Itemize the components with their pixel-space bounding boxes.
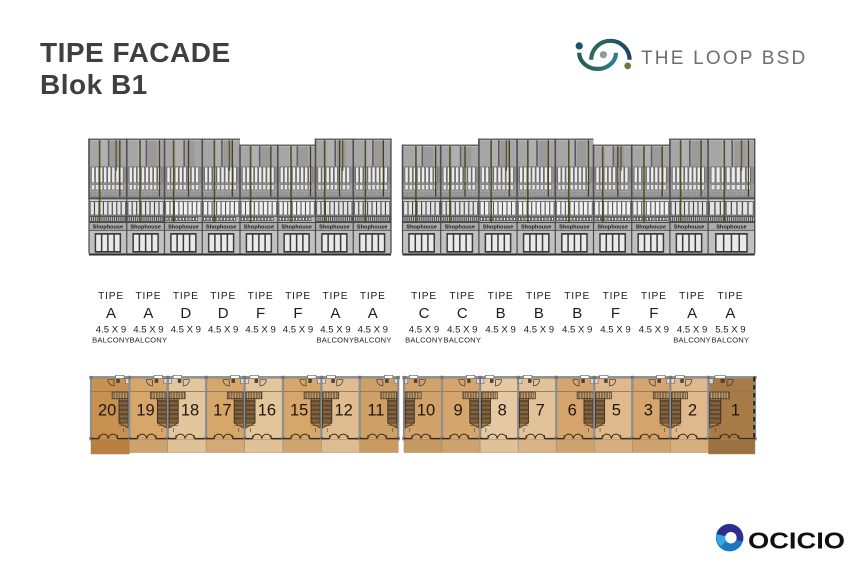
svg-text:BALCONY: BALCONY bbox=[673, 336, 711, 345]
svg-text:Shophouse: Shophouse bbox=[281, 224, 311, 230]
svg-text:4.5 X 9: 4.5 X 9 bbox=[447, 325, 477, 336]
svg-text:Shophouse: Shophouse bbox=[559, 224, 589, 230]
svg-text:BALCONY: BALCONY bbox=[130, 336, 168, 345]
svg-text:Shophouse: Shophouse bbox=[319, 224, 349, 230]
svg-text:5: 5 bbox=[612, 402, 621, 420]
svg-text:4.5 X 9: 4.5 X 9 bbox=[600, 325, 630, 336]
svg-text:BALCONY: BALCONY bbox=[92, 336, 130, 345]
svg-text:19: 19 bbox=[136, 402, 154, 420]
svg-text:D: D bbox=[180, 305, 191, 322]
svg-text:TIPE: TIPE bbox=[360, 291, 386, 302]
svg-text:4.5 X 9: 4.5 X 9 bbox=[485, 325, 515, 336]
svg-text:7: 7 bbox=[536, 402, 545, 420]
svg-text:BALCONY: BALCONY bbox=[443, 336, 481, 345]
svg-text:BALCONY: BALCONY bbox=[354, 336, 392, 345]
svg-text:4.5 X 9: 4.5 X 9 bbox=[409, 325, 439, 336]
svg-text:TIPE: TIPE bbox=[322, 291, 348, 302]
svg-text:4.5 X 9: 4.5 X 9 bbox=[96, 325, 126, 336]
svg-text:TIPE: TIPE bbox=[488, 291, 514, 302]
svg-text:TIPE FACADE: TIPE FACADE bbox=[40, 37, 231, 68]
svg-text:B: B bbox=[534, 305, 544, 322]
svg-text:11: 11 bbox=[367, 402, 384, 420]
svg-text:TIPE: TIPE bbox=[603, 291, 629, 302]
svg-text:8: 8 bbox=[498, 402, 507, 420]
svg-text:4.5 X 9: 4.5 X 9 bbox=[171, 325, 201, 336]
svg-text:1: 1 bbox=[731, 402, 740, 420]
svg-text:B: B bbox=[496, 305, 506, 322]
svg-text:17: 17 bbox=[213, 402, 231, 420]
svg-text:Shophouse: Shophouse bbox=[93, 224, 123, 230]
svg-text:Shophouse: Shophouse bbox=[445, 224, 475, 230]
svg-text:Shophouse: Shophouse bbox=[521, 224, 551, 230]
svg-text:TIPE: TIPE bbox=[98, 291, 124, 302]
svg-text:4.5 X 9: 4.5 X 9 bbox=[208, 325, 238, 336]
svg-text:4.5 X 9: 4.5 X 9 bbox=[245, 325, 275, 336]
svg-text:BALCONY: BALCONY bbox=[405, 336, 443, 345]
svg-text:2: 2 bbox=[688, 402, 697, 420]
svg-text:Shophouse: Shophouse bbox=[636, 224, 666, 230]
svg-text:A: A bbox=[106, 305, 116, 322]
svg-text:Blok B1: Blok B1 bbox=[40, 69, 148, 100]
svg-text:12: 12 bbox=[334, 402, 352, 420]
svg-text:F: F bbox=[611, 305, 620, 322]
svg-text:4.5 X 9: 4.5 X 9 bbox=[320, 325, 350, 336]
svg-text:Shophouse: Shophouse bbox=[597, 224, 627, 230]
svg-text:15: 15 bbox=[290, 402, 308, 420]
svg-text:18: 18 bbox=[181, 402, 199, 420]
svg-text:A: A bbox=[368, 305, 378, 322]
svg-text:4.5 X 9: 4.5 X 9 bbox=[133, 325, 163, 336]
svg-text:TIPE: TIPE bbox=[526, 291, 552, 302]
svg-text:TIPE: TIPE bbox=[135, 291, 161, 302]
svg-text:16: 16 bbox=[258, 402, 276, 420]
svg-text:THE LOOP BSD: THE LOOP BSD bbox=[641, 48, 807, 69]
svg-text:TIPE: TIPE bbox=[173, 291, 199, 302]
svg-text:TIPE: TIPE bbox=[210, 291, 236, 302]
svg-text:TIPE: TIPE bbox=[449, 291, 475, 302]
svg-text:6: 6 bbox=[568, 402, 577, 420]
svg-text:TIPE: TIPE bbox=[564, 291, 590, 302]
svg-text:TIPE: TIPE bbox=[717, 291, 743, 302]
svg-text:3: 3 bbox=[644, 402, 653, 420]
svg-text:B: B bbox=[572, 305, 582, 322]
svg-text:Shophouse: Shophouse bbox=[244, 224, 274, 230]
svg-text:9: 9 bbox=[453, 402, 462, 420]
svg-text:Shophouse: Shophouse bbox=[168, 224, 198, 230]
svg-text:A: A bbox=[687, 305, 697, 322]
svg-text:TIPE: TIPE bbox=[285, 291, 311, 302]
svg-text:TIPE: TIPE bbox=[641, 291, 667, 302]
svg-text:BALCONY: BALCONY bbox=[317, 336, 355, 345]
svg-text:4.5 X 9: 4.5 X 9 bbox=[358, 325, 388, 336]
svg-text:4.5 X 9: 4.5 X 9 bbox=[524, 325, 554, 336]
svg-text:TIPE: TIPE bbox=[679, 291, 705, 302]
svg-text:TIPE: TIPE bbox=[411, 291, 437, 302]
svg-text:TIPE: TIPE bbox=[248, 291, 274, 302]
svg-text:A: A bbox=[725, 305, 735, 322]
svg-text:Shophouse: Shophouse bbox=[406, 224, 436, 230]
svg-text:Shophouse: Shophouse bbox=[206, 224, 236, 230]
svg-text:C: C bbox=[419, 305, 430, 322]
svg-text:4.5 X 9: 4.5 X 9 bbox=[639, 325, 669, 336]
svg-text:5.5 X 9: 5.5 X 9 bbox=[715, 325, 745, 336]
svg-text:F: F bbox=[649, 305, 658, 322]
svg-text:Shophouse: Shophouse bbox=[716, 224, 746, 230]
svg-text:OCICIO: OCICIO bbox=[748, 528, 845, 554]
svg-text:F: F bbox=[256, 305, 265, 322]
svg-text:Shophouse: Shophouse bbox=[357, 224, 387, 230]
svg-text:20: 20 bbox=[98, 402, 116, 420]
svg-text:C: C bbox=[457, 305, 468, 322]
svg-text:Shophouse: Shophouse bbox=[674, 224, 704, 230]
svg-text:A: A bbox=[330, 305, 340, 322]
svg-text:BALCONY: BALCONY bbox=[712, 336, 750, 345]
svg-text:10: 10 bbox=[417, 402, 435, 420]
svg-text:A: A bbox=[143, 305, 153, 322]
svg-text:F: F bbox=[293, 305, 302, 322]
svg-text:4.5 X 9: 4.5 X 9 bbox=[283, 325, 313, 336]
svg-text:D: D bbox=[218, 305, 229, 322]
svg-text:Shophouse: Shophouse bbox=[483, 224, 513, 230]
svg-text:4.5 X 9: 4.5 X 9 bbox=[562, 325, 592, 336]
svg-text:4.5 X 9: 4.5 X 9 bbox=[677, 325, 707, 336]
svg-text:Shophouse: Shophouse bbox=[130, 224, 160, 230]
